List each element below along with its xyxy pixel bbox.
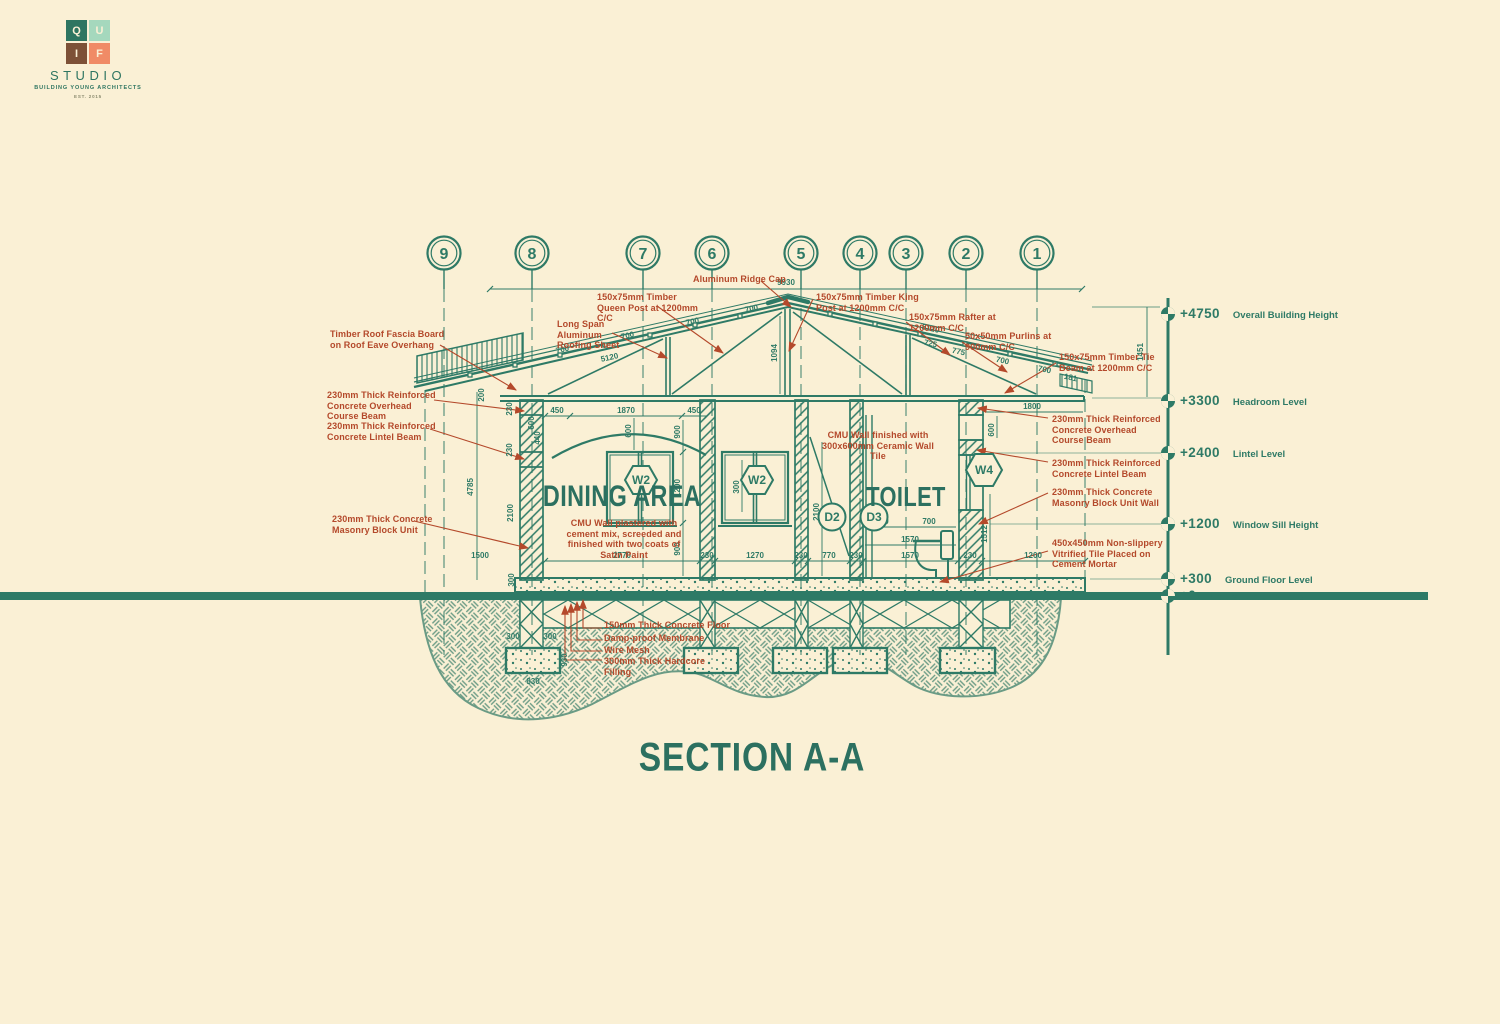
note-queen-post: 150x75mm Timber Queen Post at 1200mm C/C xyxy=(597,292,707,324)
dim-label: 300 xyxy=(506,632,520,641)
dim-label: 1270 xyxy=(746,551,764,560)
dim-label: 930 xyxy=(560,653,569,667)
dim-label: 1200 xyxy=(1024,551,1042,560)
level-value: +0 xyxy=(1180,588,1196,603)
grid-bubble-6: 6 xyxy=(708,246,717,263)
note-cmu-right: 230mm Thick Concrete Masonry Block Unit … xyxy=(1052,487,1166,508)
dim-label: 2100 xyxy=(506,504,515,522)
level-lintel: +2400Lintel Level xyxy=(1180,445,1285,460)
grid-bubble-3: 3 xyxy=(902,246,911,263)
level-value: +4750 xyxy=(1180,306,1220,321)
note-vitrified-tile: 450x450mm Non-slippery Vitrified Tile Pl… xyxy=(1052,538,1164,570)
level-label: Overall Building Height xyxy=(1233,310,1338,321)
dim-label: 300 xyxy=(507,573,516,587)
grid-bubble-7: 7 xyxy=(639,246,648,263)
grid-bubble-2: 2 xyxy=(962,246,971,263)
note-fascia-board: Timber Roof Fascia Board on Roof Eave Ov… xyxy=(330,329,445,350)
level-label: Ground Floor Level xyxy=(1225,575,1313,586)
grid-bubble-9: 9 xyxy=(440,246,449,263)
dim-label: 700 xyxy=(995,355,1011,367)
level-overall-height: +4750Overall Building Height xyxy=(1180,306,1338,321)
note-wire-mesh: Wire Mesh xyxy=(604,645,764,656)
level-value: +2400 xyxy=(1180,445,1220,460)
studio-logo: Q U I F STUDIO BUILDING YOUNG ARCHITECTS… xyxy=(24,20,152,99)
tag-w4: W4 xyxy=(975,463,993,477)
dim-label: 1570 xyxy=(901,535,919,544)
note-hardcore: 300mm Thick Hardcore Filling xyxy=(604,656,708,677)
dim-label: 600 xyxy=(527,416,536,430)
tag-d2: D2 xyxy=(824,510,840,524)
dim-label: 440 xyxy=(533,431,542,445)
dim-label: 300 xyxy=(732,480,741,494)
logo-squares: Q U I F xyxy=(24,20,152,64)
note-plaster: CMU Wall plastered with cement mix, scre… xyxy=(560,518,688,560)
drawing-title: SECTION A-A xyxy=(639,736,865,781)
dim-label: 1512 xyxy=(980,525,989,543)
level-value: +3300 xyxy=(1180,393,1220,408)
grid-bubble-4: 4 xyxy=(856,246,865,263)
note-concrete-floor: 150mm Thick Concrete Floor xyxy=(604,620,764,631)
note-ridge-cap: Aluminum Ridge Cap xyxy=(693,274,823,285)
level-value: +300 xyxy=(1180,571,1212,586)
dim-label: 230 xyxy=(849,551,863,560)
note-cmu-left: 230mm Thick Concrete Masonry Block Unit xyxy=(332,514,434,535)
logo-tagline: BUILDING YOUNG ARCHITECTS xyxy=(24,85,152,91)
dim-label: 1570 xyxy=(901,551,919,560)
plinth-band xyxy=(520,600,1010,628)
dim-label: 770 xyxy=(822,551,836,560)
level-natural-ground: +0Natural Ground Level xyxy=(1180,588,1306,603)
level-headroom: +3300Headroom Level xyxy=(1180,393,1307,408)
grid-bubble-8: 8 xyxy=(528,246,537,263)
note-membrane: Damp-proof Membrane xyxy=(604,633,764,644)
dim-label: 900 xyxy=(673,425,682,439)
dim-label: 600 xyxy=(624,424,633,438)
note-ceramic-tile: CMU Wall finished with 300x600mm Ceramic… xyxy=(818,430,938,462)
grid-bubble-5: 5 xyxy=(797,246,806,263)
dim-label: 4785 xyxy=(466,478,475,496)
dim-label: 200 xyxy=(477,388,486,402)
dim-label: 230 xyxy=(505,443,514,457)
tag-w2b: W2 xyxy=(748,473,766,487)
note-overhead-beam-right: 230mm Thick Reinforced Concrete Overhead… xyxy=(1052,414,1166,446)
dim-label: 450 xyxy=(687,406,701,415)
level-label: Lintel Level xyxy=(1233,449,1285,460)
dim-label: 700 xyxy=(1037,364,1053,376)
level-ground-floor: +300Ground Floor Level xyxy=(1180,571,1313,586)
dim-label: 1500 xyxy=(471,551,489,560)
note-lintel-beam-left: 230mm Thick Reinforced Concrete Lintel B… xyxy=(327,421,441,442)
dim-label: 230 xyxy=(963,551,977,560)
dim-label: 1870 xyxy=(617,406,635,415)
dim-label: 1800 xyxy=(1023,402,1041,411)
room-label-dining: DINING AREA xyxy=(543,480,701,514)
logo-letter-i: I xyxy=(66,43,87,64)
level-value: +1200 xyxy=(1180,516,1220,531)
dim-label: 830 xyxy=(526,677,540,686)
dim-label: 230 xyxy=(794,551,808,560)
dim-label: 450 xyxy=(550,406,564,415)
grid-bubble-1: 1 xyxy=(1033,246,1042,263)
dim-label: 725 xyxy=(923,338,939,350)
room-label-toilet: TOILET xyxy=(866,481,946,513)
dim-label: 230 xyxy=(700,551,714,560)
dim-label: 700 xyxy=(922,517,936,526)
note-lintel-beam-right: 230mm Thick Reinforced Concrete Lintel B… xyxy=(1052,458,1166,479)
logo-letter-f: F xyxy=(89,43,110,64)
logo-letter-u: U xyxy=(89,20,110,41)
dim-label: 300 xyxy=(543,632,557,641)
logo-est: EST. 2015 xyxy=(24,94,152,99)
note-king-post: 150x75mm Timber King Post at 1200mm C/C xyxy=(816,292,926,313)
dim-label: 700 xyxy=(744,303,760,315)
dim-label: 600 xyxy=(987,423,996,437)
dim-label: 1094 xyxy=(770,344,779,362)
drawing-sheet: Q U I F STUDIO BUILDING YOUNG ARCHITECTS… xyxy=(0,0,1500,1024)
level-label: Natural Ground Level xyxy=(1209,592,1306,603)
logo-studio-text: STUDIO xyxy=(24,68,152,83)
level-label: Window Sill Height xyxy=(1233,520,1318,531)
toilet-fixture xyxy=(913,531,953,578)
note-purlins: 50x50mm Purlins at 900mm C/C xyxy=(965,331,1057,352)
dim-label: 230 xyxy=(505,402,514,416)
level-label: Headroom Level xyxy=(1233,397,1307,408)
note-overhead-beam-left: 230mm Thick Reinforced Concrete Overhead… xyxy=(327,390,441,422)
dim-label: 700 xyxy=(620,330,636,342)
level-window-sill: +1200Window Sill Height xyxy=(1180,516,1318,531)
logo-letter-q: Q xyxy=(66,20,87,41)
note-tie-beam: 150x75mm Timber Tie Beam at 1200mm C/C xyxy=(1059,352,1157,373)
section-drawing: 9 8 7 6 5 4 3 2 1 xyxy=(0,0,1500,1024)
